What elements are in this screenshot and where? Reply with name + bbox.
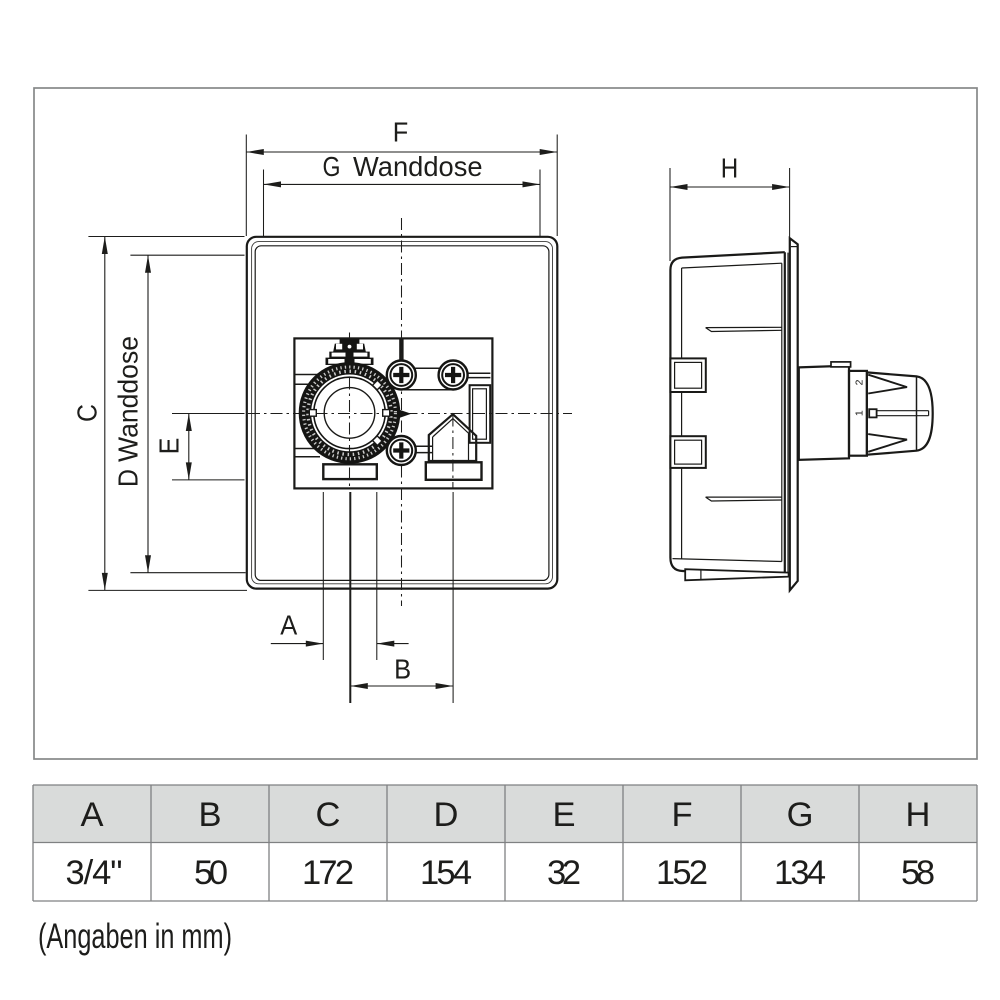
svg-text:D: D [113,469,144,487]
svg-text:B: B [198,796,221,834]
svg-text:A: A [280,610,298,641]
svg-text:A: A [80,796,103,834]
svg-text:154: 154 [420,854,472,892]
svg-text:172: 172 [302,854,354,892]
svg-text:Wanddose: Wanddose [353,151,483,182]
svg-text:50: 50 [194,854,228,892]
svg-text:G: G [323,151,341,182]
svg-text:32: 32 [547,854,581,892]
svg-text:58: 58 [901,854,935,892]
svg-text:G: G [787,796,814,834]
svg-text:F: F [671,796,692,834]
svg-text:152: 152 [656,854,708,892]
svg-text:3/4": 3/4" [66,854,123,892]
svg-text:H: H [721,153,739,184]
svg-text:H: H [906,796,931,834]
svg-text:Wanddose: Wanddose [113,336,144,462]
svg-text:C: C [72,404,103,422]
svg-text:E: E [552,796,575,834]
svg-text:C: C [316,796,341,834]
svg-text:1: 1 [854,410,866,416]
svg-text:D: D [434,796,459,834]
svg-text:(Angaben in mm): (Angaben in mm) [38,917,232,956]
svg-text:F: F [393,117,409,148]
svg-text:2: 2 [854,379,866,385]
svg-text:B: B [394,654,411,685]
svg-text:E: E [154,438,185,455]
svg-text:134: 134 [774,854,826,892]
